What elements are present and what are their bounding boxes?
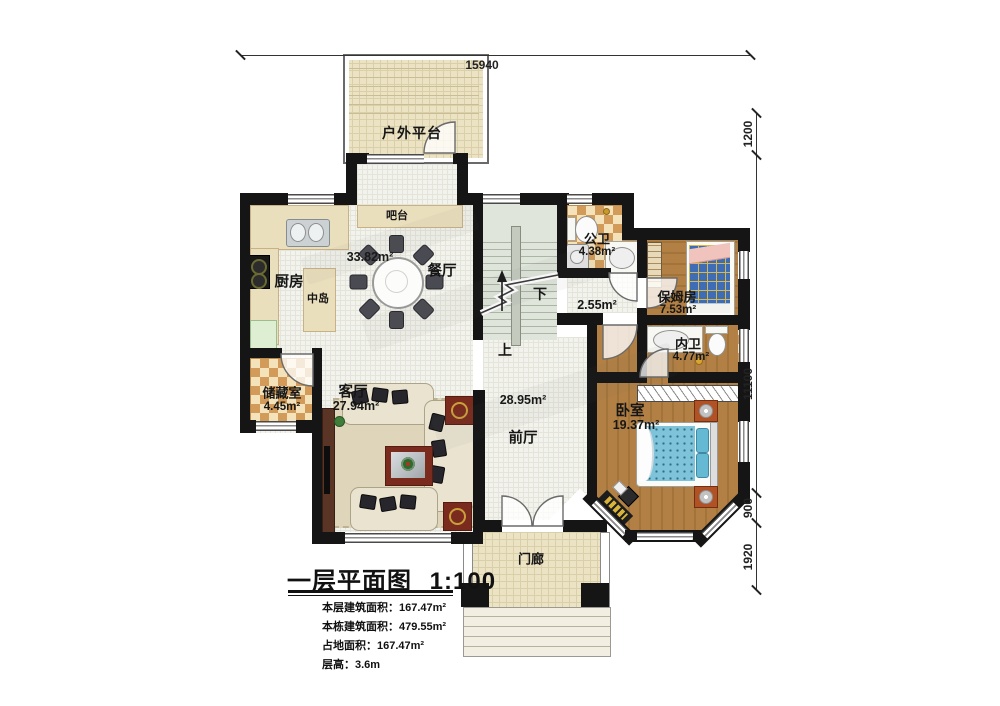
porch-pillar-right [581, 583, 609, 607]
label-storage: 储藏室 [262, 383, 301, 402]
wall [563, 520, 607, 532]
info-value: 479.55m² [399, 621, 446, 633]
info-row: 本层建筑面积：167.47m² [322, 599, 446, 615]
info-value: 167.47m² [377, 640, 424, 652]
dimension-right-bay: 900 [741, 498, 755, 518]
label-island: 中岛 [307, 290, 329, 306]
inner-bath-window [739, 329, 749, 363]
dimension-right-porch: 1920 [741, 544, 755, 571]
sink-basin-right-icon [308, 223, 324, 242]
floor-plan-canvas: 户外平台 吧台 33.82m² 厨房 中岛 餐厅 公卫 4.38m² 2.55m… [0, 0, 1000, 706]
info-label: 占地面积： [322, 640, 377, 652]
info-value: 167.47m² [399, 602, 446, 614]
dimension-line-top [240, 55, 751, 56]
vestibule-floor [357, 164, 467, 209]
living-window [345, 533, 451, 543]
gold-ring-icon [449, 508, 466, 525]
label-stairs-up: 上 [498, 340, 512, 360]
label-front-hall: 前厅 [509, 427, 538, 448]
dimension-line-right [756, 113, 757, 590]
sofa-pillow-icon [379, 496, 397, 513]
wall [557, 313, 603, 325]
label-living-area: 27.94m² [333, 399, 380, 413]
side-table-bottom [443, 502, 472, 531]
wall [632, 228, 750, 240]
outdoor-platform-deck-lines [349, 60, 479, 122]
kitchen-window [288, 194, 334, 204]
nightstand [694, 486, 718, 508]
label-kitchen: 厨房 [275, 271, 304, 292]
label-porch: 门廊 [518, 549, 544, 568]
dining-chair [350, 275, 368, 290]
bay-window-bottom [637, 532, 693, 540]
porch-steps [463, 607, 611, 657]
burner-icon [251, 273, 267, 289]
plant-icon [401, 457, 415, 471]
info-row: 占地面积：167.47m² [322, 637, 446, 653]
sink-basin-left-icon [290, 223, 306, 242]
label-platform: 户外平台 [382, 123, 442, 143]
stairwell-window [481, 194, 522, 204]
bed-pillow-icon [696, 453, 709, 478]
storage-window [256, 421, 296, 431]
label-bar: 吧台 [386, 207, 408, 223]
platform-window [367, 154, 424, 164]
info-value: 3.6m [355, 659, 380, 671]
sofa-pillow-icon [399, 494, 416, 510]
fridge [250, 320, 277, 349]
sofa-pillow-icon [391, 389, 408, 404]
title-underline-thin [288, 595, 453, 596]
nanny-wardrobe [647, 242, 662, 288]
wall [637, 240, 647, 278]
plant-icon [334, 416, 345, 427]
label-nanny: 保姆房 [657, 287, 696, 306]
nanny-window [739, 251, 749, 280]
wall [240, 193, 250, 358]
label-dining: 餐厅 [428, 260, 457, 281]
label-inner-bath: 内卫 [675, 334, 701, 353]
label-nanny-area: 7.53m² [660, 304, 696, 316]
wall [312, 348, 322, 544]
exterior-mask-left [238, 433, 312, 533]
label-storage-area: 4.45m² [264, 401, 300, 413]
inner-toilet-bowl-icon [708, 333, 726, 356]
wall [240, 420, 256, 433]
dimension-right-main: 11100 [741, 368, 755, 400]
lamp-icon [699, 490, 713, 504]
label-corridor-area: 2.55m² [577, 298, 617, 312]
dimension-right-top: 1200 [741, 121, 755, 148]
label-inner-bath-area: 4.77m² [673, 351, 709, 363]
coffee-table [385, 446, 433, 486]
dimension-top-value: 15940 [465, 58, 498, 72]
sofa-pillow-icon [359, 494, 377, 510]
info-label: 本层建筑面积： [322, 602, 399, 614]
plan-info-block: 本层建筑面积：167.47m² 本栋建筑面积：479.55m² 占地面积：167… [322, 599, 446, 672]
bedroom-window [739, 421, 749, 463]
kitchen-sink [286, 219, 330, 247]
info-label: 本栋建筑面积： [322, 621, 399, 633]
bed-pillow-icon [696, 428, 709, 453]
public-bath-window [567, 194, 594, 204]
lamp-icon [699, 404, 713, 418]
wall [296, 420, 322, 433]
door-knob-icon [603, 208, 610, 215]
wall [637, 315, 750, 325]
wall [668, 372, 742, 383]
info-row: 层高：3.6m [322, 656, 446, 672]
bed-headboard [710, 422, 718, 487]
wall [483, 520, 502, 532]
label-bedroom-area: 19.37m² [613, 418, 660, 432]
bedroom-wardrobe [637, 385, 739, 402]
wall [451, 532, 483, 544]
info-label: 层高： [322, 659, 355, 671]
dining-table-inner-ring [385, 270, 408, 293]
wall [587, 325, 597, 503]
stove [247, 255, 270, 289]
tv-icon [324, 446, 330, 494]
nightstand [694, 400, 718, 422]
info-row: 本栋建筑面积：479.55m² [322, 618, 446, 634]
title-underline-thick [288, 590, 453, 593]
